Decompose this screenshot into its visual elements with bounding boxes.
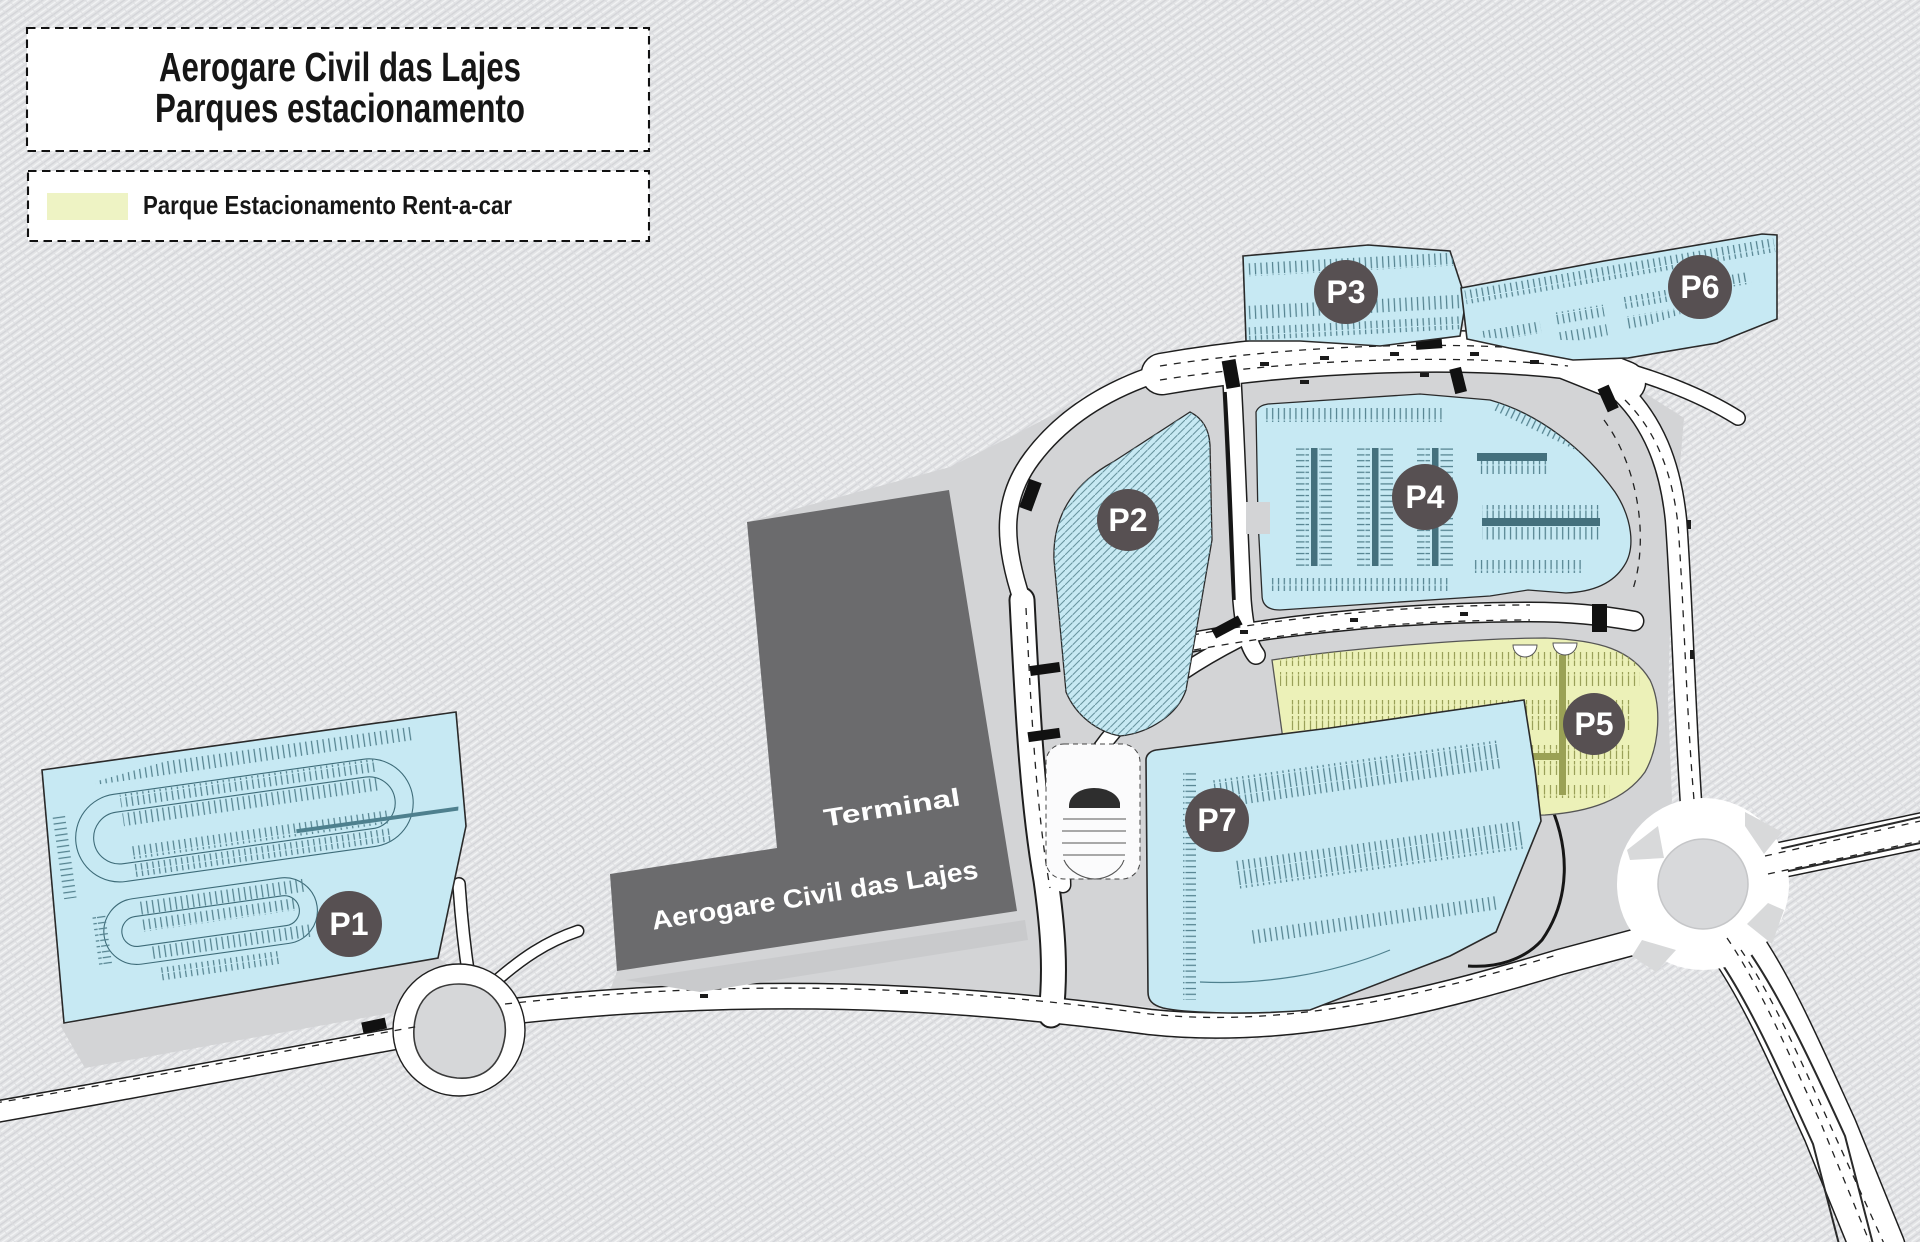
svg-text:P6: P6 xyxy=(1680,269,1719,305)
svg-text:P7: P7 xyxy=(1197,802,1236,838)
svg-text:P4: P4 xyxy=(1405,479,1444,515)
svg-text:Parques estacionamento: Parques estacionamento xyxy=(155,85,525,131)
svg-text:Aerogare Civil das Lajes: Aerogare Civil das Lajes xyxy=(159,44,521,90)
svg-text:P2: P2 xyxy=(1108,502,1147,538)
svg-text:Parque Estacionamento Rent-a-c: Parque Estacionamento Rent-a-car xyxy=(143,190,512,220)
svg-text:P5: P5 xyxy=(1574,706,1613,742)
svg-text:P3: P3 xyxy=(1326,274,1365,310)
svg-text:P1: P1 xyxy=(329,906,368,942)
